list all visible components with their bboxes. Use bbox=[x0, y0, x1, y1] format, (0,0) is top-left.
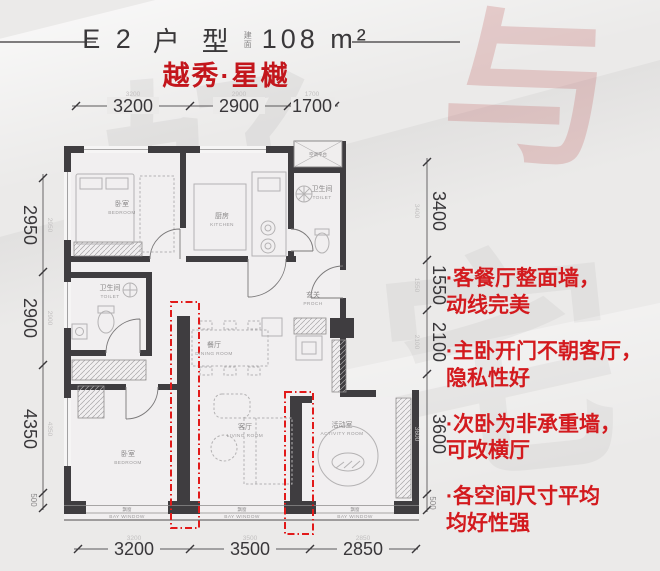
svg-text:PROCH: PROCH bbox=[303, 301, 322, 307]
svg-text:卧室: 卧室 bbox=[115, 199, 129, 208]
room-label-toilet-mid: 卫生间 TOILET bbox=[100, 283, 121, 300]
svg-text:BEDROOM: BEDROOM bbox=[108, 210, 136, 216]
dim-left-3-small: 4350 bbox=[46, 422, 53, 437]
svg-text:餐厅: 餐厅 bbox=[207, 340, 221, 349]
svg-text:玄关: 玄关 bbox=[306, 290, 320, 299]
dim-right-1-small: 3400 bbox=[413, 204, 420, 219]
svg-text:ACTIVITY ROOM: ACTIVITY ROOM bbox=[321, 431, 364, 437]
svg-text:KITCHEN: KITCHEN bbox=[210, 222, 234, 228]
dim-bottom-1: 3200 bbox=[114, 539, 154, 559]
svg-text:客厅: 客厅 bbox=[238, 422, 252, 431]
dim-right-4: 3600 bbox=[429, 414, 449, 454]
floorplan-canvas: 空调平台 bbox=[0, 0, 660, 571]
dim-right-3-small: 2100 bbox=[413, 335, 420, 350]
dim-left-1-small: 2950 bbox=[46, 218, 53, 233]
svg-text:飘窗: 飘窗 bbox=[123, 506, 132, 513]
svg-text:TOILET: TOILET bbox=[100, 294, 119, 300]
ac-platform: 空调平台 bbox=[294, 141, 342, 167]
dim-left-4: 500 bbox=[29, 493, 38, 507]
floorplan-page: 与 好 宅 E 2 户 型 建面 108 m² 越秀·星樾 ·客餐厅整面墙， 动… bbox=[0, 0, 660, 571]
dim-left-2-small: 2900 bbox=[46, 311, 53, 326]
svg-text:BAY WINDOW: BAY WINDOW bbox=[109, 514, 145, 520]
dim-right-4-small: 3600 bbox=[413, 427, 420, 442]
dim-bottom-2: 3500 bbox=[230, 539, 270, 559]
svg-text:厨房: 厨房 bbox=[215, 211, 229, 220]
dim-top-2: 2900 bbox=[219, 96, 259, 116]
dim-bottom-3: 2850 bbox=[343, 539, 383, 559]
dim-right-2: 1550 bbox=[429, 265, 449, 305]
svg-text:活动室: 活动室 bbox=[332, 420, 353, 429]
dim-left-3: 4350 bbox=[20, 409, 40, 449]
room-label-porch: 玄关 PROCH bbox=[303, 290, 322, 307]
svg-text:飘窗: 飘窗 bbox=[238, 506, 247, 513]
room-label-toilet-top: 卫生间 TOILET bbox=[312, 184, 333, 201]
dim-top-1: 3200 bbox=[113, 96, 153, 116]
svg-text:BAY WINDOW: BAY WINDOW bbox=[224, 514, 260, 520]
svg-text:BAY WINDOW: BAY WINDOW bbox=[337, 514, 373, 520]
dim-right-2-small: 1550 bbox=[413, 278, 420, 293]
dim-right-1: 3400 bbox=[429, 191, 449, 231]
svg-text:卫生间: 卫生间 bbox=[312, 184, 333, 193]
svg-text:LIVING ROOM: LIVING ROOM bbox=[227, 433, 263, 439]
svg-text:卧室: 卧室 bbox=[121, 449, 135, 458]
dim-top-3: 1700 bbox=[292, 96, 332, 116]
dim-right-5: 500 bbox=[428, 496, 437, 510]
svg-text:卫生间: 卫生间 bbox=[100, 283, 121, 292]
svg-text:DINING ROOM: DINING ROOM bbox=[195, 351, 232, 357]
svg-text:飘窗: 飘窗 bbox=[351, 506, 360, 513]
svg-text:BEDROOM: BEDROOM bbox=[114, 460, 142, 466]
dim-left-1: 2950 bbox=[20, 205, 40, 245]
svg-text:TOILET: TOILET bbox=[312, 195, 331, 201]
dim-left-2: 2900 bbox=[20, 298, 40, 338]
room-label-ac: 空调平台 bbox=[309, 151, 327, 158]
dim-right-3: 2100 bbox=[429, 322, 449, 362]
